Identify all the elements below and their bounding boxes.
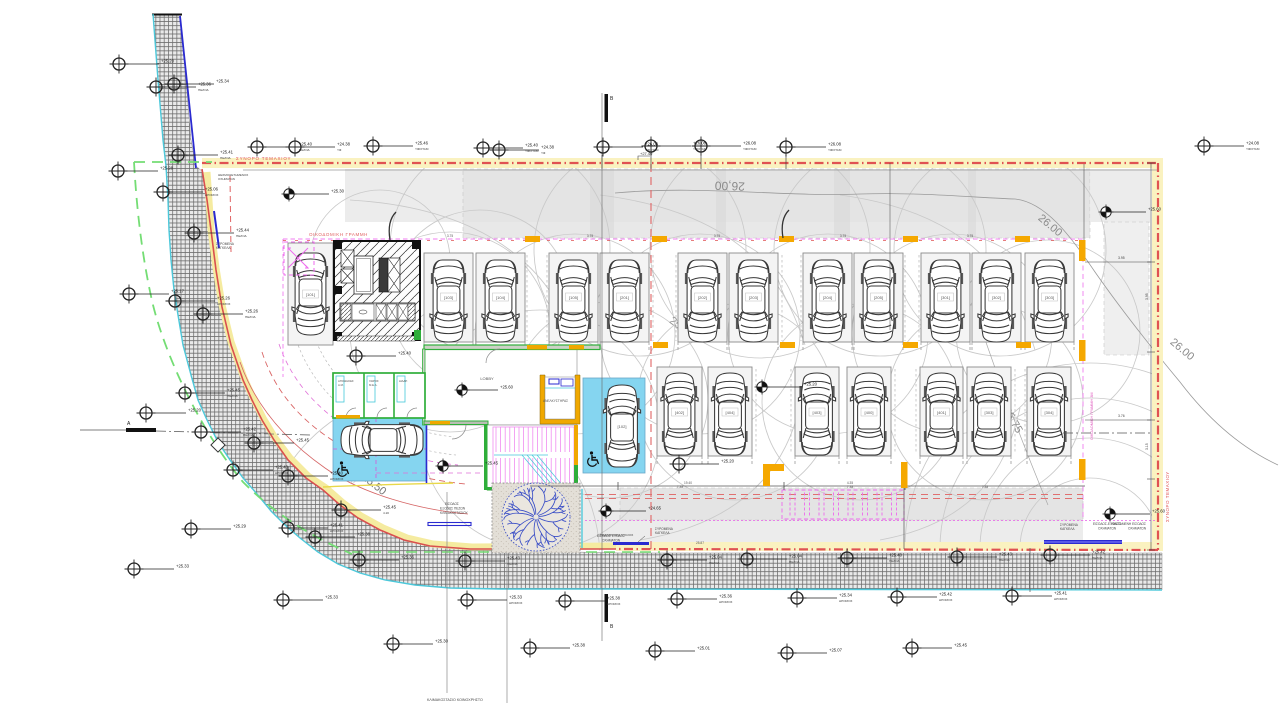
svg-text:+25.40: +25.40 [330,471,344,476]
svg-text:ΠΕΖΟΔ: ΠΕΖΟΔ [709,561,720,565]
svg-text:7.38: 7.38 [982,485,988,489]
svg-text:+25.45: +25.45 [296,438,310,443]
svg-text:ΕΙΣΟΔΟΣ-ΕΞΟΔΟΣ: ΕΙΣΟΔΟΣ-ΕΞΟΔΟΣ [1093,522,1121,526]
svg-text:[203]: [203] [749,295,758,300]
svg-text:ΣΥΝΟΡΟ ΤΕΜΑΧΙΟΥ: ΣΥΝΟΡΟ ΤΕΜΑΧΙΟΥ [236,156,291,161]
svg-text:+25.40: +25.40 [398,351,412,356]
svg-text:ΚΑΓΚΕΛΑ: ΚΑΓΚΕΛΑ [655,531,670,535]
svg-text:[400]: [400] [865,410,874,415]
svg-text:ΔΡΟΜΟΣ: ΔΡΟΜΟΣ [509,601,523,605]
svg-text:3.75: 3.75 [714,234,720,238]
svg-text:+24.38: +24.38 [541,145,555,150]
svg-text:+25.46: +25.46 [415,141,429,146]
svg-text:+25.26: +25.26 [217,296,231,301]
svg-text:[205]: [205] [874,295,883,300]
svg-text:[302]: [302] [992,295,1001,300]
svg-text:[204]: [204] [823,295,832,300]
svg-text:+25.20: +25.20 [161,59,175,64]
svg-text:ΥΦΙΣΤΑΜ: ΥΦΙΣΤΑΜ [415,147,429,151]
svg-text:+25.20: +25.20 [804,382,818,387]
svg-text:+25.42: +25.42 [1092,550,1106,555]
svg-text:+25.30: +25.30 [435,639,449,644]
svg-text:3.75: 3.75 [587,234,593,238]
svg-text:+25.41: +25.41 [220,150,234,155]
svg-text:ΠΕΖΟΔ: ΠΕΖΟΔ [236,234,247,238]
svg-text:ΟΙΚΟΔΟΜΙΚΗ ΓΡΑΜΜΗ: ΟΙΚΟΔΟΜΙΚΗ ΓΡΑΜΜΗ [309,232,368,237]
svg-text:3.76: 3.76 [1118,414,1125,418]
svg-text:ΔΡΟΜΟΣ: ΔΡΟΜΟΣ [330,529,344,533]
svg-text:[202]: [202] [698,295,707,300]
svg-text:7.38: 7.38 [847,485,853,489]
svg-text:[304]: [304] [1045,410,1054,415]
svg-text:ΚΑΓΚΕΛΑ: ΚΑΓΚΕΛΑ [1060,527,1075,531]
svg-text:+25.44: +25.44 [236,228,250,233]
svg-text:[401]: [401] [937,410,946,415]
svg-text:+25.33: +25.33 [325,595,339,600]
svg-text:[105]: [105] [569,295,578,300]
svg-text:ΔΡΟΜΟΣ: ΔΡΟΜΟΣ [217,302,231,306]
svg-text:+25.29: +25.29 [233,524,247,529]
svg-text:+25.01: +25.01 [697,646,711,651]
svg-text:[201]: [201] [620,295,629,300]
svg-text:ΚΑΓΚΕΛΑ: ΚΑΓΚΕΛΑ [216,246,231,250]
svg-text:+26.08: +26.08 [743,141,757,146]
svg-text:+25.38: +25.38 [357,532,371,537]
svg-text:3.75: 3.75 [840,234,846,238]
svg-text:ΚΛΙΜΑΚΟΣΤΑΣΙΟ ΚΟΙΝΟΧΡΗΣΤΟ: ΚΛΙΜΑΚΟΣΤΑΣΙΟ ΚΟΙΝΟΧΡΗΣΤΟ [427,698,483,702]
svg-text:ΥΦΙΣΤΑΜ: ΥΦΙΣΤΑΜ [743,147,757,151]
svg-text:[303]: [303] [985,410,994,415]
svg-text:[404]: [404] [726,410,735,415]
svg-text:ΠΕΖΟΔ: ΠΕΖΟΔ [227,394,238,398]
svg-text:+25.20: +25.20 [721,459,735,464]
svg-text:[402]: [402] [675,410,684,415]
svg-text:[303]: [303] [1045,295,1054,300]
svg-text:+25.30: +25.30 [331,189,345,194]
svg-text:+25.40: +25.40 [889,553,903,558]
svg-text:LOBBY: LOBBY [480,376,494,381]
svg-text:Α.Μ.: Α.Μ. [338,383,344,387]
svg-text:+25.45: +25.45 [227,388,241,393]
svg-text:[101]: [101] [306,292,315,297]
svg-text:+25.43: +25.43 [999,552,1013,557]
svg-text:+25.60: +25.60 [1152,509,1166,514]
svg-text:+25.42: +25.42 [939,592,953,597]
svg-text:+25.36: +25.36 [401,555,415,560]
svg-text:4.20: 4.20 [383,511,389,515]
svg-text:[103]: [103] [444,295,453,300]
svg-text:+25.33: +25.33 [176,564,190,569]
svg-text:ΠΕΖΟΔ: ΠΕΖΟΔ [789,560,800,564]
svg-text:26,00: 26,00 [714,178,745,193]
svg-text:[104]: [104] [496,295,505,300]
svg-text:ΥΦΙΣΤΑΜ: ΥΦΙΣΤΑΜ [1246,147,1260,151]
svg-text:ΔΡΟΜΟΣ: ΔΡΟΜΟΣ [1054,597,1068,601]
svg-text:+25.20: +25.20 [188,408,202,413]
svg-text:+27.40: +27.40 [640,151,653,156]
svg-text:[102]: [102] [618,424,627,429]
svg-text:ΔΡΟΜΟΣ: ΔΡΟΜΟΣ [839,599,853,603]
svg-text:25.87: 25.87 [696,541,704,545]
svg-text:ΠΕΖΟΔ: ΠΕΖΟΔ [507,562,518,566]
svg-text:ΟΧΗΜΑΤΩΝ: ΟΧΗΜΑΤΩΝ [1128,527,1147,531]
svg-text:+25.36: +25.36 [719,594,733,599]
svg-text:+25.60: +25.60 [1148,207,1162,212]
svg-text:+25.42: +25.42 [243,427,257,432]
svg-text:ΟΧΗΜΑΤΩΝ: ΟΧΗΜΑΤΩΝ [602,539,621,543]
svg-text:3.15: 3.15 [1145,443,1149,450]
svg-text:+25.04: +25.04 [709,555,723,560]
svg-text:+25.26: +25.26 [245,309,259,314]
svg-text:ΔΡΟΜΟΣ: ΔΡΟΜΟΣ [719,600,733,604]
svg-text:ΠΕΖΟΔ: ΠΕΖΟΔ [245,315,256,319]
svg-text:ΔΡΟΜΟΣ: ΔΡΟΜΟΣ [607,602,621,606]
svg-text:ΔΙΑΔΡ.: ΔΙΑΔΡ. [399,379,408,383]
svg-text:+25.45: +25.45 [383,505,397,510]
svg-text:+25.60: +25.60 [500,385,514,390]
svg-text:ΣΥΝΟΡΟ ΤΕΜΑΧΙΟΥ: ΣΥΝΟΡΟ ΤΕΜΑΧΙΟΥ [1165,471,1170,522]
svg-text:ΠΕΖΟΔ: ΠΕΖΟΔ [999,558,1010,562]
svg-text:ΠΕΖΟΔ: ΠΕΖΟΔ [198,88,209,92]
svg-text:ΥΦΙΣΤΑΜ: ΥΦΙΣΤΑΜ [828,148,842,152]
svg-text:Μ.Ε.Α.: Μ.Ε.Α. [369,383,378,387]
svg-text:+25.41: +25.41 [1054,591,1068,596]
svg-text:19.40: 19.40 [684,481,692,485]
svg-text:+25.06: +25.06 [205,187,219,192]
svg-text:3.75: 3.75 [967,234,973,238]
svg-text:+25.45: +25.45 [485,461,499,466]
svg-text:ΥΦ: ΥΦ [541,151,546,155]
svg-text:ΔΡΟΜΟΣ: ΔΡΟΜΟΣ [330,477,344,481]
svg-text:ΕΞΟΔΟΣ ΠΕΖΩΝ: ΕΞΟΔΟΣ ΠΕΖΩΝ [440,507,466,511]
svg-text:3.95: 3.95 [1118,256,1125,260]
svg-text:+25.40: +25.40 [525,143,539,148]
svg-text:+24.65: +24.65 [648,506,662,511]
svg-text:ΔΡΟΜΟΣ: ΔΡΟΜΟΣ [205,193,219,197]
svg-text:+25.04: +25.04 [789,554,803,559]
svg-text:+25.33: +25.33 [509,595,523,600]
svg-text:+25.38: +25.38 [572,643,586,648]
svg-text:+25.28: +25.28 [160,166,174,171]
svg-text:[403]: [403] [813,410,822,415]
svg-text:+25.17: +25.17 [171,289,185,294]
svg-text:ΔΡΟΜΟΣ: ΔΡΟΜΟΣ [939,598,953,602]
svg-text:ΚΛΙΜΑΚΟΣΤΑΣΙΟΥ: ΚΛΙΜΑΚΟΣΤΑΣΙΟΥ [440,511,468,515]
svg-text:+24.08: +24.08 [1246,141,1260,146]
svg-text:+25.34: +25.34 [216,79,230,84]
svg-text:ΑΝΕΛΚΥΣΤΗΡΑΣ: ΑΝΕΛΚΥΣΤΗΡΑΣ [543,399,568,403]
svg-text:+26.08: +26.08 [828,142,842,147]
svg-text:+24.38: +24.38 [337,142,351,147]
svg-text:+25.45: +25.45 [954,643,968,648]
svg-text:ΠΕΖΟΔ: ΠΕΖΟΔ [1092,556,1103,560]
svg-text:+25.41: +25.41 [330,523,344,528]
svg-text:ΠΕΖΟΔ: ΠΕΖΟΔ [243,433,254,437]
svg-text:3.75: 3.75 [447,234,453,238]
svg-text:+25.43: +25.43 [507,556,521,561]
svg-text:ΠΕΖΟΔ: ΠΕΖΟΔ [220,156,231,160]
svg-text:ΥΦ: ΥΦ [337,148,342,152]
svg-text:+25.38: +25.38 [607,596,621,601]
svg-text:ΠΕΖΟΔ: ΠΕΖΟΔ [889,559,900,563]
svg-text:ΕΙΣΟΔΟΣ ΕΞΟΔΟΣ: ΕΙΣΟΔΟΣ ΕΞΟΔΟΣ [597,534,625,538]
svg-text:7.38: 7.38 [677,485,683,489]
svg-text:ΟΧΗΜΑΤΩΝ: ΟΧΗΜΑΤΩΝ [218,177,235,181]
svg-text:[301]: [301] [941,295,950,300]
svg-text:ΟΧΗΜΑΤΩΝ: ΟΧΗΜΑΤΩΝ [1098,527,1117,531]
svg-text:+25.40: +25.40 [275,465,289,470]
svg-text:+25.34: +25.34 [839,593,853,598]
svg-text:3.95: 3.95 [1145,293,1149,300]
svg-text:+25.07: +25.07 [829,648,843,653]
